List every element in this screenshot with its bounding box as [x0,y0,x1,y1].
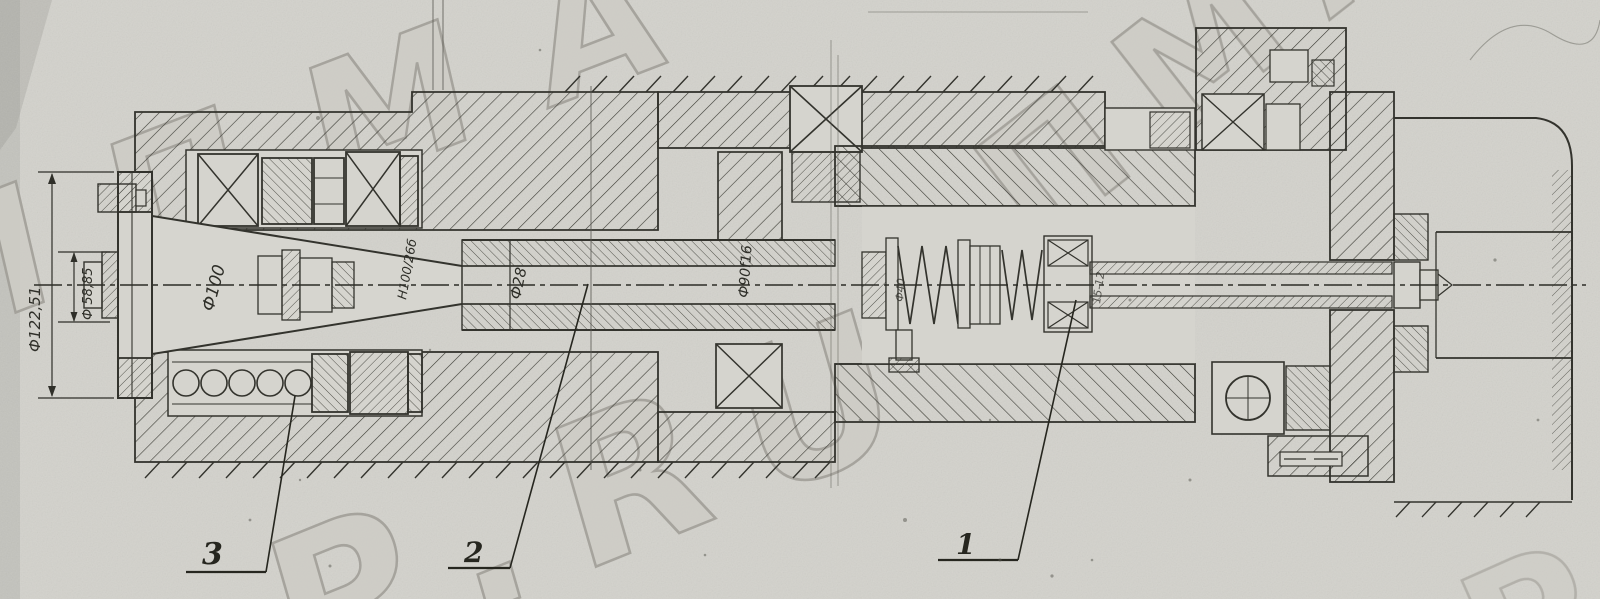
clamp-bolt [98,184,136,212]
lock-bolt [896,330,912,360]
callout-1-number: 1 [956,528,975,561]
dim-pilot: Ф 58,85 [81,267,96,320]
front-bearing-bottom [168,350,422,416]
spindle-section-drawing: ИПМА Р.RU ПМА Р [0,0,1600,599]
callout-2-number: 2 [463,536,483,569]
scanned-drawing-page: ИПМА Р.RU ПМА Р [0,0,1600,599]
dim-spring: Ф40 [893,278,908,303]
dim-flange: Ф122,51 [26,287,44,352]
callout-3-number: 3 [202,537,223,572]
front-bearing-top [186,150,422,228]
